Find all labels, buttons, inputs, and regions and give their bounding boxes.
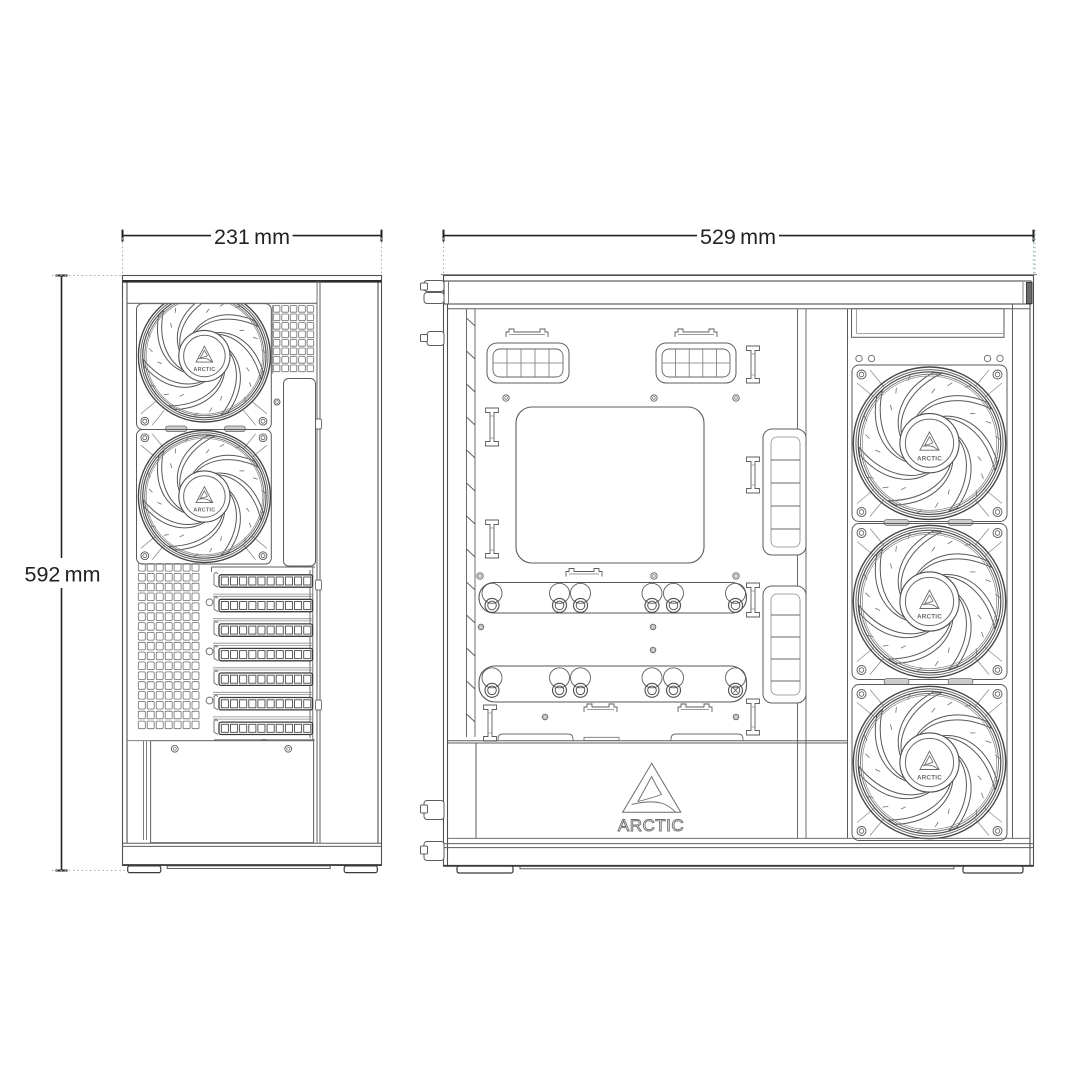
svg-text:ARCTIC: ARCTIC — [618, 816, 684, 835]
svg-text:ARCTIC: ARCTIC — [917, 775, 942, 782]
svg-text:592 mm: 592 mm — [25, 563, 101, 587]
svg-text:ARCTIC: ARCTIC — [917, 614, 942, 621]
svg-text:ARCTIC: ARCTIC — [193, 507, 215, 513]
svg-text:529 mm: 529 mm — [700, 225, 776, 249]
svg-text:ARCTIC: ARCTIC — [917, 455, 942, 462]
svg-text:ARCTIC: ARCTIC — [193, 367, 215, 373]
svg-text:231 mm: 231 mm — [214, 225, 290, 249]
